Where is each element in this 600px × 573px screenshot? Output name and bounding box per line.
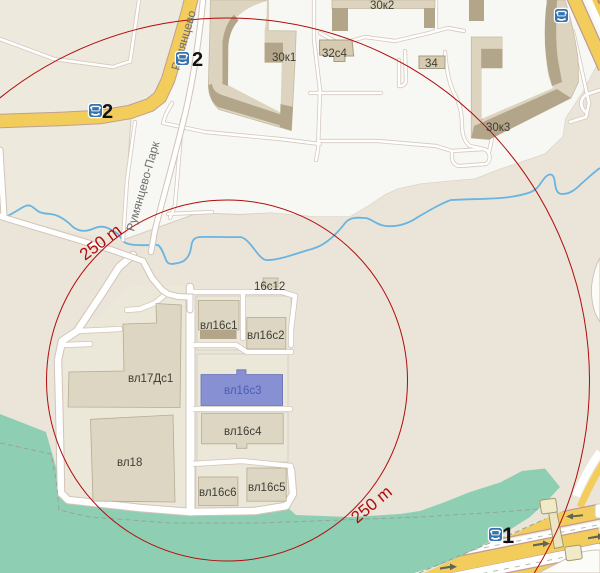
svg-text:16с12: 16с12 [254,281,285,293]
svg-text:30к3: 30к3 [486,122,510,134]
svg-text:30к1: 30к1 [272,52,296,64]
svg-text:30к2: 30к2 [370,0,394,12]
svg-text:1: 1 [502,523,514,548]
svg-text:вл17Дс1: вл17Дс1 [128,373,173,385]
svg-text:вл16с6: вл16с6 [199,487,237,499]
svg-text:2: 2 [192,49,203,71]
svg-text:32с4: 32с4 [322,48,348,60]
svg-text:2: 2 [102,101,113,123]
svg-text:34: 34 [425,58,438,70]
svg-text:вл16с3: вл16с3 [224,385,262,397]
svg-text:вл16с1: вл16с1 [200,320,238,332]
svg-text:вл18: вл18 [117,457,142,469]
svg-text:вл16с4: вл16с4 [224,426,262,438]
svg-text:вл16с2: вл16с2 [247,330,285,342]
svg-text:вл16с5: вл16с5 [248,482,286,494]
